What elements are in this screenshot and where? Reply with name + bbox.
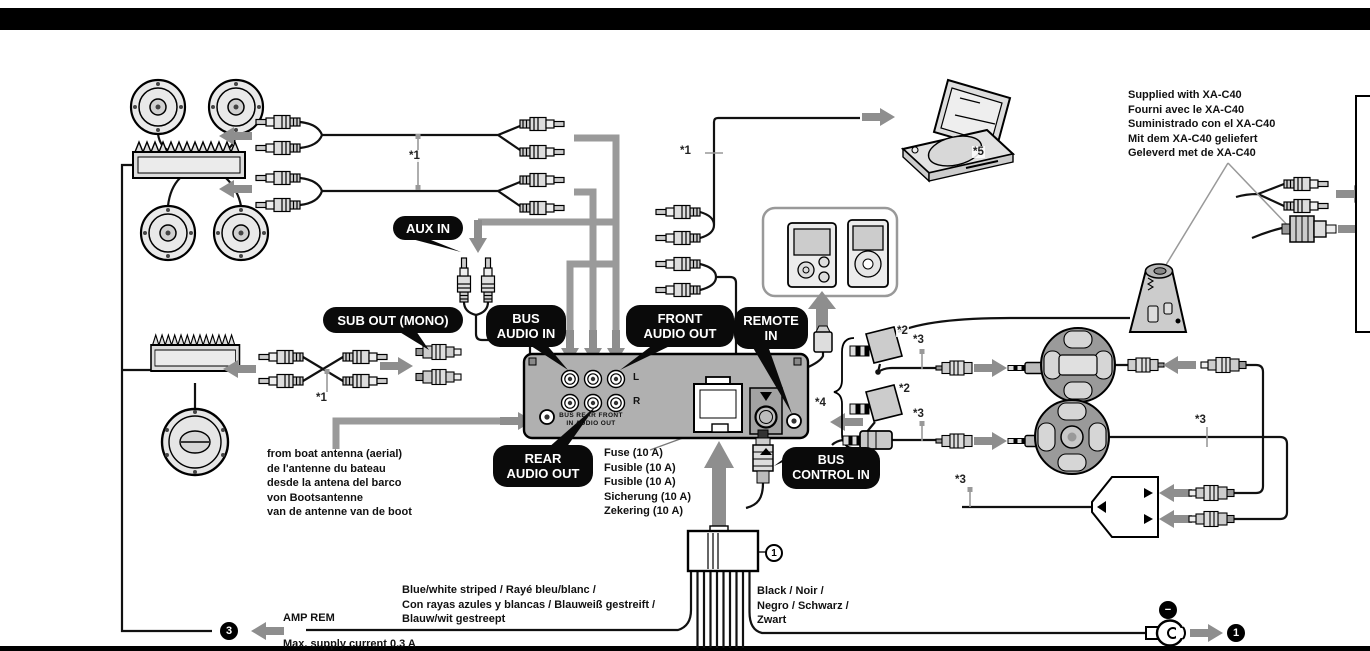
arrow-ground-icon — [1190, 624, 1223, 642]
aux-rca-plug-icon — [458, 258, 471, 302]
arrow-to-player-icon — [862, 108, 895, 126]
rca-plug-icon — [256, 142, 300, 155]
note-line: Geleverd met de XA-C40 — [1128, 147, 1256, 159]
amp-rem-connection-badge: 3 — [220, 622, 238, 640]
label-line: REMOTE — [743, 313, 799, 328]
front-speakers-group — [131, 80, 268, 260]
aux-rca-plug-icon — [482, 258, 495, 302]
label-aux-in-text: AUX IN — [406, 221, 450, 236]
rca-plug-icon — [656, 232, 700, 245]
asterisk-3: *3 — [954, 474, 967, 486]
blue-white-wire-note: Blue/white striped / Rayé bleu/blanc /Co… — [402, 583, 655, 627]
note-line: Suministrado con el XA-C40 — [1128, 118, 1275, 130]
rca-plug-icon — [259, 351, 303, 364]
label-sub-out-text: SUB OUT (MONO) — [337, 313, 448, 328]
xa-c40-box-partial — [1356, 96, 1370, 332]
label-line: IN — [765, 328, 778, 343]
rca-plug-icon — [256, 116, 300, 129]
arrow-to-remote-in-icon — [830, 413, 863, 431]
rca-plug-icon — [256, 172, 300, 185]
note-line: Zwart — [757, 614, 786, 626]
speaker-icon — [214, 206, 268, 260]
screw-icon — [529, 358, 536, 365]
speaker-icon — [209, 80, 263, 134]
extension-connector-icon — [1201, 358, 1246, 373]
remote-in-jack-icon — [787, 414, 801, 428]
arrow-harness-to-unit-icon — [704, 441, 734, 530]
y-input-connector-icon — [1189, 486, 1234, 501]
rca-plug-icon — [520, 146, 564, 159]
sub-out-connector-icon — [416, 370, 461, 385]
label-line: REAR — [525, 451, 562, 466]
asterisk-3: *3 — [912, 408, 925, 420]
dock-connector-icon — [814, 326, 832, 352]
label-sub-out: SUB OUT (MONO) — [323, 307, 463, 333]
asterisk-3: *3 — [912, 334, 925, 346]
label-line: AUDIO IN — [497, 326, 556, 341]
rca-plug-icon — [520, 174, 564, 187]
wiring-diagram-page: AUX IN SUB OUT (MONO) BUSAUDIO IN FRONTA… — [0, 0, 1370, 651]
rotary-commander-icon — [1130, 264, 1186, 332]
minus-polarity-icon: − — [1159, 601, 1177, 619]
angle-plug-icon — [850, 385, 902, 421]
label-front-audio-out: FRONTAUDIO OUT — [626, 305, 734, 347]
speaker-icon — [141, 206, 195, 260]
max-current-label: Max. supply current 0.3 A — [283, 637, 416, 651]
note-line: Fuse (10 A) — [604, 447, 663, 459]
portable-player-icon — [903, 80, 1013, 181]
extension-connector-icon — [1128, 358, 1164, 372]
rca-plug-icon — [256, 199, 300, 212]
note-line: de l'antenne du bateau — [267, 463, 386, 475]
rca-plug-icon — [656, 206, 700, 219]
asterisk-1: *1 — [408, 150, 421, 162]
rca-plug-icon — [1284, 200, 1328, 213]
label-line: BUS — [818, 453, 844, 468]
label-line: FRONT — [658, 311, 703, 326]
label-aux-in: AUX IN — [393, 216, 463, 240]
channel-l-label: L — [633, 372, 639, 383]
note-line: Black / Noir / — [757, 585, 824, 597]
wiring-harness — [688, 526, 758, 571]
bus-control-connector-icon — [753, 430, 773, 483]
harness-ref-badge: 1 — [765, 544, 783, 562]
note-line: Fusible (10 A) — [604, 462, 676, 474]
label-line: CONTROL IN — [792, 468, 870, 483]
fuse-holder — [750, 388, 782, 434]
ground-terminal-icon — [1146, 621, 1186, 646]
rca-plug-icon — [343, 375, 387, 388]
bus-in-jack-icon — [562, 371, 579, 388]
cable-junction-dot — [875, 369, 881, 375]
note-line: von Bootsantenne — [267, 492, 363, 504]
bus-connector-icon — [1282, 216, 1336, 242]
rca-plug-icon — [656, 258, 700, 271]
arrow-into-y-icon — [1159, 484, 1192, 502]
power-amplifier-icon — [133, 142, 245, 178]
power-amplifier-icon — [151, 335, 239, 371]
rca-plug-icon — [259, 375, 303, 388]
antenna-note: from boat antenna (aerial)de l'antenne d… — [267, 447, 412, 520]
bus-in-jack-icon — [562, 395, 579, 412]
note-line: Blauw/wit gestreept — [402, 613, 505, 625]
note-line: Zekering (10 A) — [604, 505, 683, 517]
asterisk-1: *1 — [315, 392, 328, 404]
asterisk-1: *1 — [679, 145, 692, 157]
channel-r-label: R — [633, 396, 640, 407]
sub-out-connector-icon — [416, 345, 461, 360]
note-line: Blue/white striped / Rayé bleu/blanc / — [402, 584, 596, 596]
note-line: Supplied with XA-C40 — [1128, 89, 1242, 101]
asterisk-2: *2 — [898, 383, 911, 395]
supplied-note: Supplied with XA-C40Fourni avec le XA-C4… — [1128, 88, 1275, 161]
label-line: AUDIO OUT — [507, 466, 580, 481]
asterisk-4: *4 — [814, 397, 827, 409]
rca-plug-icon — [343, 351, 387, 364]
mini-plug-icon — [1008, 363, 1045, 374]
walkman-icon — [788, 223, 836, 287]
wired-remote-icon — [1035, 400, 1109, 474]
label-remote-in: REMOTEIN — [734, 307, 808, 349]
y-adapter-icon — [1092, 477, 1158, 537]
note-line: desde la antena del barco — [267, 477, 402, 489]
asterisk-2: *2 — [896, 325, 909, 337]
rca-plug-icon — [656, 284, 700, 297]
label-bus-control-in: BUSCONTROL IN — [782, 447, 880, 489]
amp-rem-label: AMP REM — [283, 611, 335, 626]
extension-connector-icon — [936, 361, 972, 375]
note-line: from boat antenna (aerial) — [267, 448, 402, 460]
arrow-into-y-icon — [1159, 510, 1192, 528]
front-out-jack-icon — [608, 371, 625, 388]
arrow-chain-icon — [1163, 356, 1196, 374]
rca-plug-icon — [520, 202, 564, 215]
note-line: Mit dem XA-C40 geliefert — [1128, 133, 1258, 145]
arrow-chain-icon — [974, 432, 1007, 450]
front-out-jack-icon — [608, 395, 625, 412]
fuse-note: Fuse (10 A)Fusible (10 A)Fusible (10 A)S… — [604, 446, 691, 519]
note-line: van de antenne van de boot — [267, 506, 412, 518]
label-rear-audio-out: REARAUDIO OUT — [493, 445, 593, 487]
rear-out-jack-icon — [585, 371, 602, 388]
harness-socket-icon — [694, 377, 742, 432]
screw-icon — [794, 358, 801, 365]
note-line: Fusible (10 A) — [604, 476, 676, 488]
unit-ports-label-top: BUS REAR FRONT — [546, 412, 636, 419]
note-line: Negro / Schwarz / — [757, 600, 849, 612]
ipod-icon — [848, 220, 888, 287]
arrow-amp-rem-icon — [251, 622, 284, 640]
note-line: Sicherung (10 A) — [604, 491, 691, 503]
rca-plug-icon — [520, 118, 564, 131]
black-wire-note: Black / Noir /Negro / Schwarz /Zwart — [757, 584, 849, 628]
asterisk-3: *3 — [1194, 414, 1207, 426]
asterisk-5: *5 — [972, 146, 985, 158]
note-line: Fourni avec le XA-C40 — [1128, 104, 1244, 116]
ground-connection-badge: 1 — [1227, 624, 1245, 642]
arrow-to-amp-icon — [219, 180, 252, 198]
label-bus-audio-in: BUSAUDIO IN — [486, 305, 566, 347]
angle-plug-icon — [850, 327, 902, 363]
extension-connector-icon — [936, 434, 972, 448]
note-line: Con rayas azules y blancas / Blauweiß ge… — [402, 599, 655, 611]
label-line: BUS — [512, 311, 539, 326]
media-players-group — [763, 208, 897, 296]
subwoofer-icon — [162, 409, 228, 475]
unit-ports-label-bottom: IN AUDIO OUT — [546, 420, 636, 427]
wired-remote-icon — [1041, 328, 1115, 402]
speaker-icon — [131, 80, 185, 134]
supplied-note-pointers — [1158, 163, 1293, 278]
y-input-connector-icon — [1189, 512, 1234, 527]
arrow-chain-icon — [974, 359, 1007, 377]
label-line: AUDIO OUT — [644, 326, 717, 341]
rca-plug-icon — [1284, 178, 1328, 191]
